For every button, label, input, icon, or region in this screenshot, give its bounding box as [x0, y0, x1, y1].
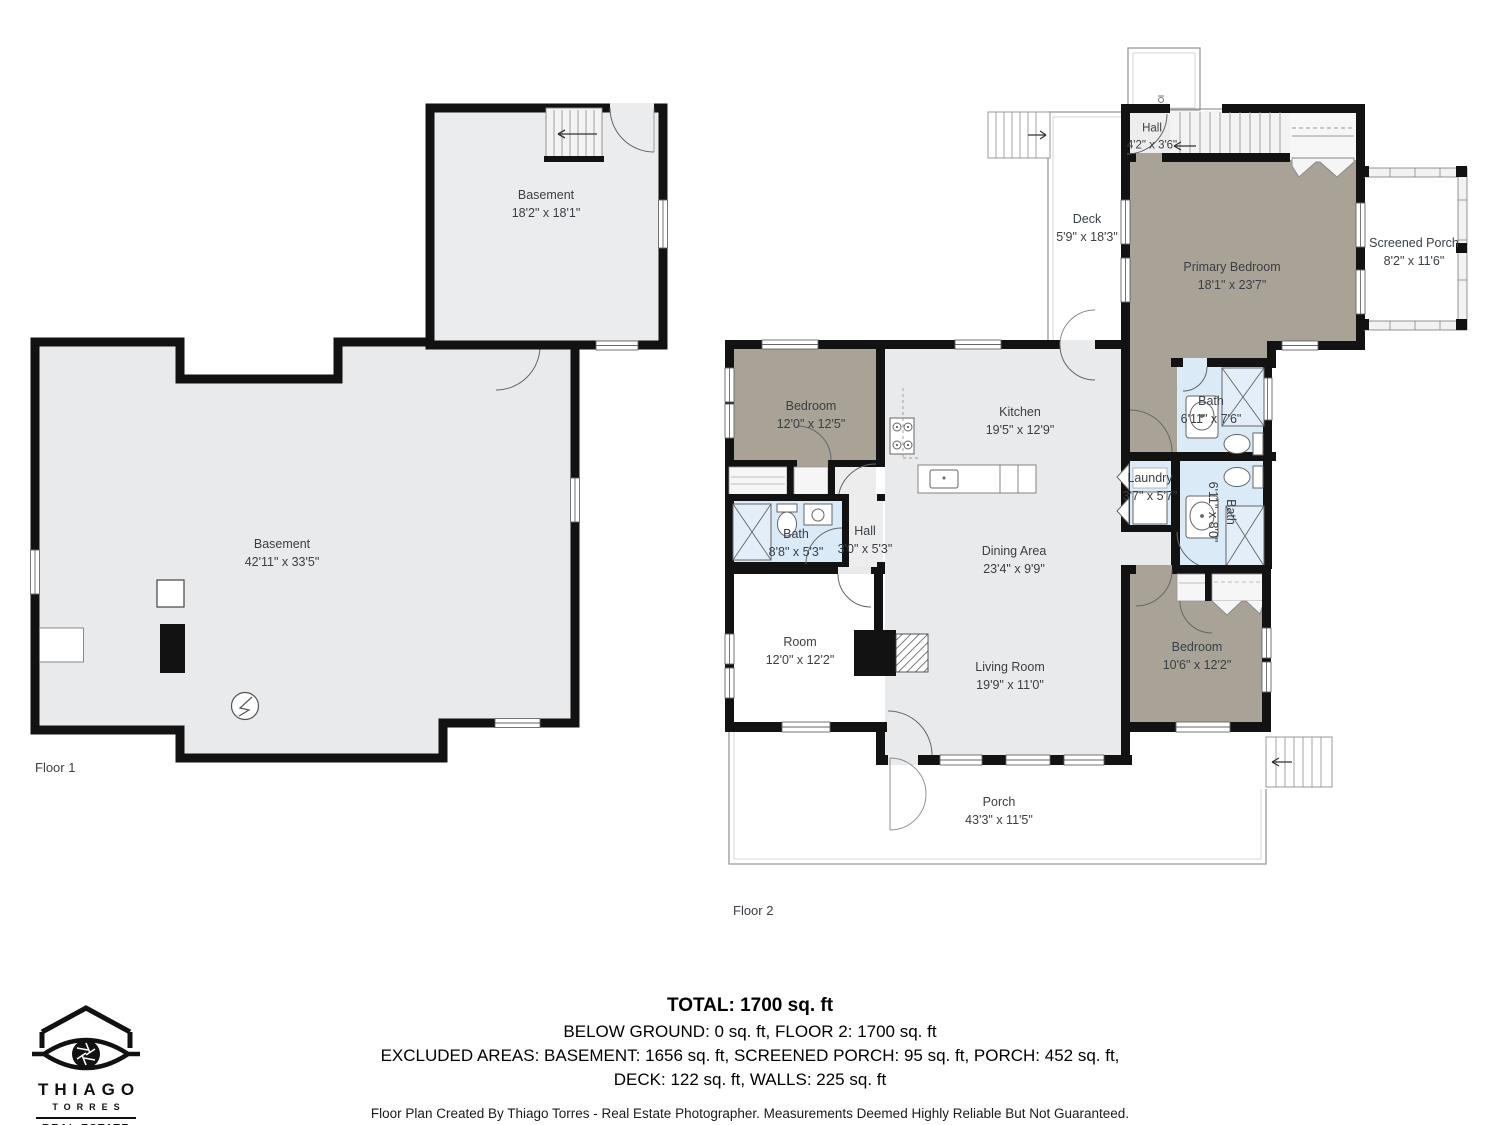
room-label-kitchen: Kitchen 19'5" x 12'9" — [986, 403, 1055, 439]
room-label-hall-top: Hall 4'2" x 3'6" — [1127, 120, 1177, 153]
window-icon — [1176, 722, 1230, 732]
window-icon — [762, 340, 818, 349]
room-label-living: Living Room 19'9" x 11'0" — [975, 658, 1044, 694]
room-label-screened-porch: Screened Porch 8'2" x 11'6" — [1369, 234, 1459, 270]
window-icon — [782, 722, 830, 732]
room-label-bedroom-lower: Bedroom 10'6" x 12'2" — [1163, 638, 1232, 674]
room-label-basement-main: Basement 42'11" x 33'5" — [245, 535, 320, 571]
logo-divider — [36, 1117, 136, 1119]
window-icon — [955, 340, 1001, 349]
floor2-plan — [725, 48, 1467, 864]
balcony-outline — [1128, 48, 1200, 110]
door-arc-icon — [890, 758, 926, 830]
sink-icon — [804, 504, 832, 525]
room-label-dining: Dining Area 23'4" x 9'9" — [982, 542, 1047, 578]
summary-line3: EXCLUDED AREAS: BASEMENT: 1656 sq. ft, S… — [0, 1046, 1500, 1066]
room-label-bath-lower: Bath 6'11" x 8'0" — [1204, 482, 1240, 543]
stove-icon — [890, 418, 914, 454]
door-arc-icon — [838, 574, 871, 607]
furnace-icon — [157, 580, 184, 607]
summary-disclaimer: Floor Plan Created By Thiago Torres - Re… — [0, 1106, 1500, 1121]
floor1-caption: Floor 1 — [35, 760, 75, 775]
stairs-icon — [544, 108, 604, 162]
exterior-stairs-icon — [1266, 737, 1332, 787]
kitchen-sink-icon — [930, 470, 958, 488]
basement-upper-room — [430, 103, 668, 350]
summary-total: TOTAL: 1700 sq. ft — [0, 995, 1500, 1017]
photographer-logo: THIAGO TORRES REAL ESTATE PHOTOGRAPHER — [26, 1078, 146, 1125]
room-label-primary-bedroom: Primary Bedroom 18'1" x 23'7" — [1183, 258, 1280, 294]
room-label-deck: Deck 5'9" x 18'3" — [1056, 210, 1118, 246]
toilet-icon — [1224, 433, 1263, 455]
area-summary: TOTAL: 1700 sq. ft BELOW GROUND: 0 sq. f… — [0, 995, 1500, 1121]
floor-plan-drawing — [0, 0, 1500, 1125]
window-icon — [1282, 341, 1318, 350]
room-label-bath-main: Bath 8'8" x 5'3" — [769, 525, 824, 561]
room-label-basement-upper: Basement 18'2" x 18'1" — [512, 186, 581, 222]
logo-name-bottom: TORRES — [26, 1102, 146, 1112]
floor-plan-page: Basement 18'2" x 18'1" Basement 42'11" x… — [0, 0, 1500, 1125]
room-label-porch: Porch 43'3" x 11'5" — [965, 793, 1033, 829]
room-label-bath-upper: Bath 6'11" x 7'6" — [1181, 392, 1242, 428]
floor2-caption: Floor 2 — [733, 903, 773, 918]
logo-name-top: THIAGO — [26, 1080, 146, 1100]
water-heater-icon — [232, 693, 259, 720]
room-label-hall-main: Hall 3'0" x 5'3" — [838, 522, 893, 558]
room-label-bedroom-upper: Bedroom 12'0" x 12'5" — [777, 397, 846, 433]
room-label-room: Room 12'0" x 12'2" — [766, 633, 835, 669]
fireplace-hearth-icon — [896, 634, 928, 672]
summary-line4: DECK: 122 sq. ft, WALLS: 225 sq. ft — [0, 1070, 1500, 1090]
fireplace-icon — [854, 630, 896, 676]
window-icon — [940, 755, 1104, 765]
window-well — [40, 628, 84, 662]
deck-stairs-icon — [988, 112, 1050, 158]
shower-icon — [733, 504, 771, 560]
summary-line2: BELOW GROUND: 0 sq. ft, FLOOR 2: 1700 sq… — [0, 1022, 1500, 1042]
room-label-laundry: Laundry 3'7" x 5'7" — [1123, 469, 1178, 505]
chimney-icon — [160, 624, 185, 673]
